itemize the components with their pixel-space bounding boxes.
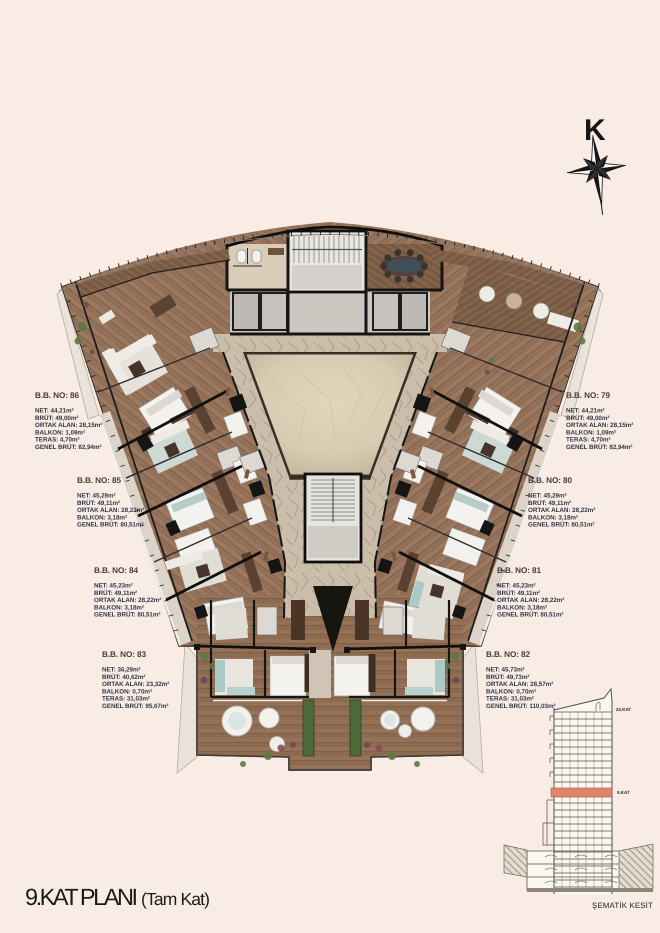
svg-text:B.B. NO: 81: B.B. NO: 81: [497, 566, 541, 575]
svg-text:B.B. NO: 79: B.B. NO: 79: [566, 391, 610, 400]
svg-text:B.B. NO: 83: B.B. NO: 83: [102, 650, 146, 659]
svg-text:B.B. NO: 82: B.B. NO: 82: [486, 650, 530, 659]
svg-text:22.KAT: 22.KAT: [616, 707, 631, 712]
svg-text:9.KAT: 9.KAT: [617, 790, 630, 795]
svg-text:B.B. NO: 80: B.B. NO: 80: [528, 476, 572, 485]
svg-text:B.B. NO: 86: B.B. NO: 86: [35, 391, 79, 400]
svg-text:K: K: [584, 114, 606, 147]
svg-text:B.B. NO: 85: B.B. NO: 85: [77, 476, 121, 485]
svg-text:B.B. NO: 84: B.B. NO: 84: [94, 566, 138, 575]
svg-text:ŞEMATİK KESİT: ŞEMATİK KESİT: [592, 901, 653, 910]
